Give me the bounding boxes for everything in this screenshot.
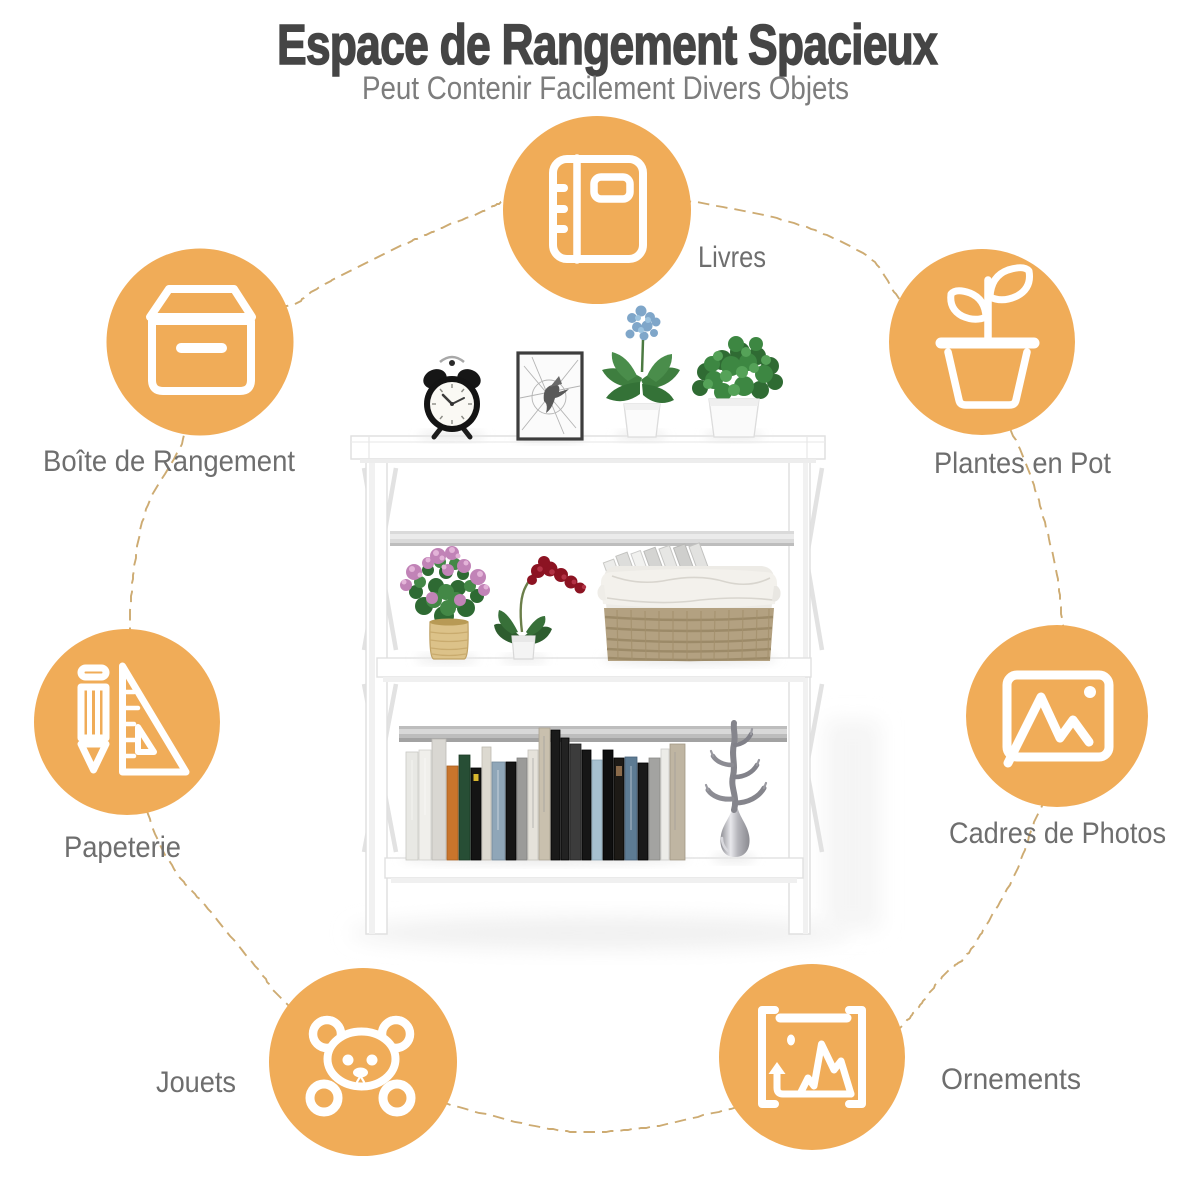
svg-text:Peut Contenir Facilement Diver: Peut Contenir Facilement Divers Objets: [362, 70, 849, 106]
svg-text:Cadres de Photos: Cadres de Photos: [949, 817, 1166, 850]
svg-text:Livres: Livres: [698, 241, 766, 274]
svg-text:Ornements: Ornements: [941, 1063, 1081, 1096]
svg-text:Boîte de Rangement: Boîte de Rangement: [43, 445, 296, 478]
svg-text:Papeterie: Papeterie: [64, 831, 181, 864]
svg-text:Plantes en Pot: Plantes en Pot: [934, 447, 1112, 480]
svg-text:Espace de Rangement Spacieux: Espace de Rangement Spacieux: [277, 13, 938, 77]
svg-text:Jouets: Jouets: [156, 1066, 236, 1099]
